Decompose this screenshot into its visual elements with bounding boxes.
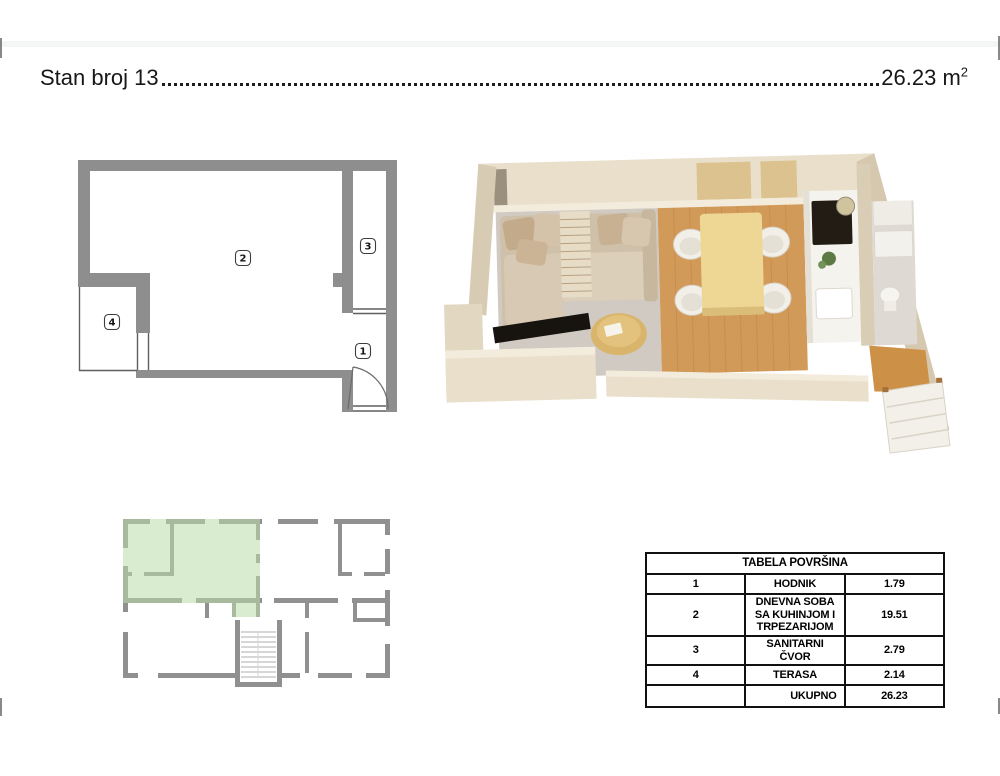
row-name: TERASA <box>745 665 844 685</box>
apartment-highlight <box>123 519 260 617</box>
dining-table <box>700 212 765 316</box>
room-label-1: 1 <box>360 347 367 358</box>
room-label-3: 3 <box>365 242 372 253</box>
throw-blanket <box>560 211 592 298</box>
plan-thin-lines <box>79 287 386 411</box>
row-number: 1 <box>646 574 745 594</box>
row-name: SANITARNI ČVOR <box>745 636 844 665</box>
apartment-area: 26.23 m2 <box>881 65 968 92</box>
area-unit-exponent: 2 <box>961 65 968 80</box>
scan-smudge-band <box>0 41 1000 47</box>
key-plan <box>118 512 398 692</box>
render-window <box>760 160 797 198</box>
parapet-wall <box>445 355 596 403</box>
table-title: TABELA POVRŠINA <box>646 553 944 574</box>
stairwell <box>240 621 277 682</box>
floor-plan-2d: 1 2 3 4 <box>60 140 420 430</box>
table-row: 4 TERASA 2.14 <box>646 665 944 685</box>
areas-table: TABELA POVRŠINA 1 HODNIK 1.79 2 DNEVNA S… <box>645 552 945 708</box>
total-label: UKUPNO <box>745 685 844 707</box>
scan-edge-tick <box>0 698 2 716</box>
room-label-4: 4 <box>109 318 116 329</box>
render-left-wall <box>464 163 500 316</box>
render-balcony-door <box>696 162 751 200</box>
kitchen-counter <box>803 190 861 343</box>
dotted-leader <box>162 83 880 86</box>
clock <box>836 197 854 215</box>
row-number: 3 <box>646 636 745 665</box>
toilet <box>880 287 900 304</box>
row-area: 19.51 <box>845 594 944 636</box>
area-unit: m <box>942 65 960 90</box>
table-header-row: TABELA POVRŠINA <box>646 553 944 574</box>
row-number: 4 <box>646 665 745 685</box>
apartment-title: Stan broj 13 <box>40 65 159 92</box>
pillow <box>621 216 652 247</box>
row-name: HODNIK <box>745 574 844 594</box>
plan-walls <box>78 160 397 412</box>
row-number: 2 <box>646 594 745 636</box>
table-total-row: UKUPNO 26.23 <box>646 685 944 707</box>
total-empty-cell <box>646 685 745 707</box>
area-value: 26.23 <box>881 65 936 90</box>
room-label-2: 2 <box>240 254 247 265</box>
total-value: 26.23 <box>845 685 944 707</box>
table-row: 3 SANITARNI ČVOR 2.79 <box>646 636 944 665</box>
page-title-row: Stan broj 13 26.23 m2 <box>40 58 968 92</box>
bathroom <box>871 200 917 345</box>
row-area: 2.79 <box>845 636 944 665</box>
render-3d <box>440 148 960 470</box>
pillow <box>515 238 548 266</box>
row-name: DNEVNA SOBA SA KUHINJOM I TRPEZARIJOM <box>745 594 844 636</box>
row-area: 1.79 <box>845 574 944 594</box>
scan-edge-tick <box>0 38 2 58</box>
row-area: 2.14 <box>845 665 944 685</box>
table-row: 2 DNEVNA SOBA SA KUHINJOM I TRPEZARIJOM … <box>646 594 944 636</box>
table-row: 1 HODNIK 1.79 <box>646 574 944 594</box>
sink <box>816 288 853 319</box>
entry-door-swing <box>348 367 388 409</box>
